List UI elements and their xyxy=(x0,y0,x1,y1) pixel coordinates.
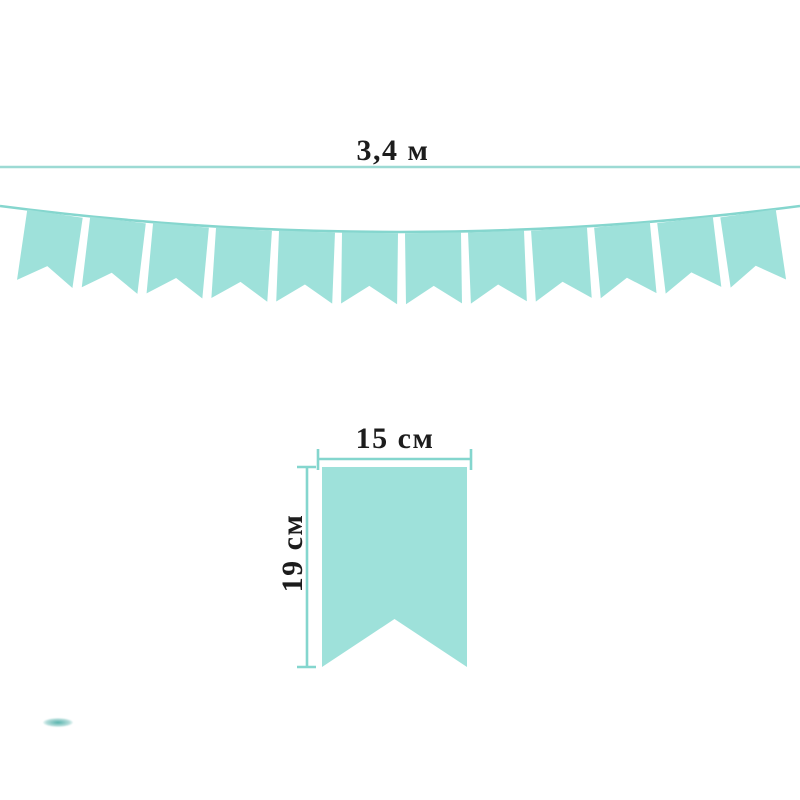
garland-flag xyxy=(17,210,83,288)
garland-flag xyxy=(276,230,335,303)
garland-flag xyxy=(594,222,656,298)
garland-flags-group xyxy=(17,209,786,304)
watermark-smudge xyxy=(43,718,73,727)
flag-width-label: 15 см xyxy=(315,424,475,454)
flag-height-label: 19 см xyxy=(278,473,308,633)
garland-flag xyxy=(531,227,592,302)
garland-flag xyxy=(405,232,462,304)
garland-flag xyxy=(720,209,786,287)
garland-flag xyxy=(657,216,721,293)
garland-flag xyxy=(211,227,272,302)
garland-flag xyxy=(341,232,398,304)
garland-flag xyxy=(147,223,209,299)
garland-flag xyxy=(82,217,146,294)
total-length-label: 3,4 м xyxy=(313,136,473,166)
diagram-canvas xyxy=(0,0,800,800)
garland-flag xyxy=(468,230,527,303)
pennant-banner-dimension-diagram: 3,4 м 15 см 19 см xyxy=(0,0,800,800)
single-flag-shape xyxy=(322,467,467,667)
